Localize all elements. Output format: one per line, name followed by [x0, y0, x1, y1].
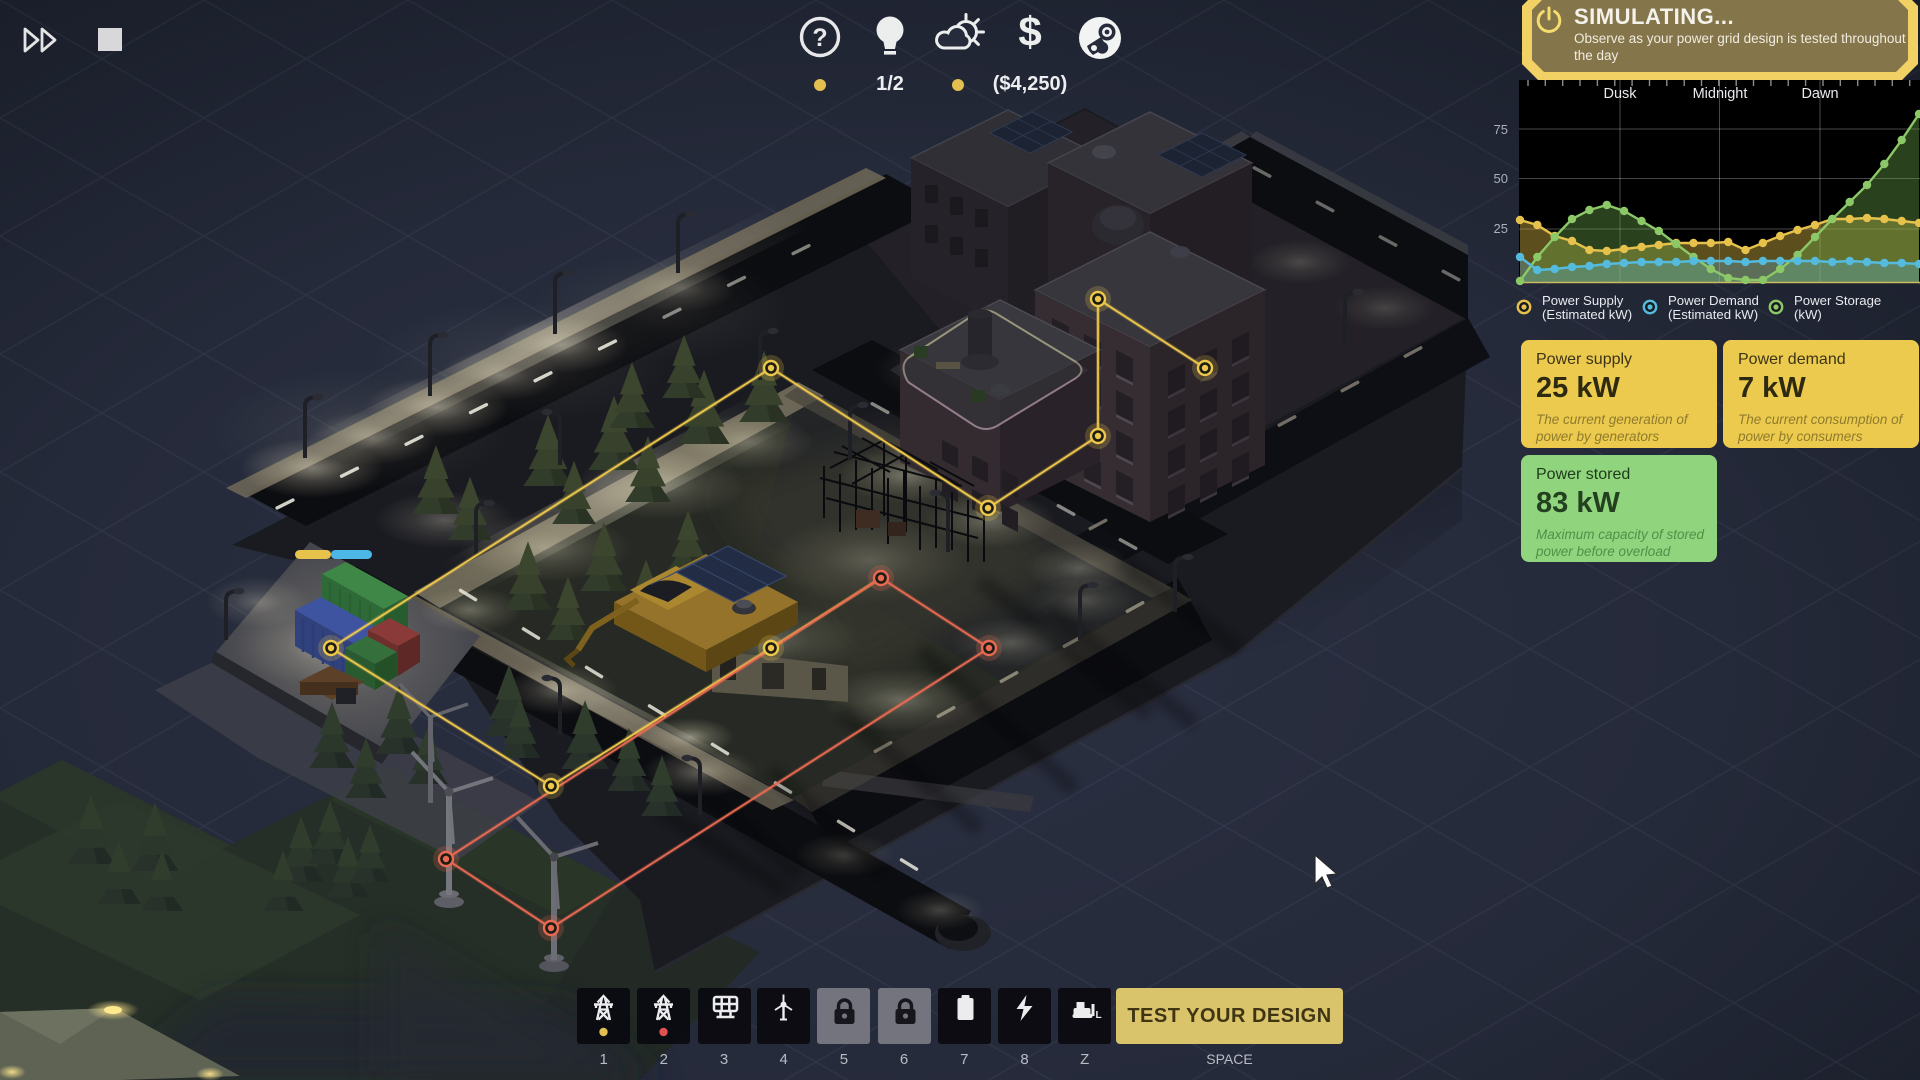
svg-text:50: 50 [1494, 171, 1508, 186]
svg-text:Midnight: Midnight [1693, 86, 1748, 102]
svg-text:Power Supply: Power Supply [1542, 293, 1624, 308]
svg-text:(Estimated kW): (Estimated kW) [1668, 307, 1758, 322]
svg-text:(kW): (kW) [1794, 307, 1822, 322]
svg-text:(Estimated kW): (Estimated kW) [1542, 307, 1632, 322]
svg-text:Power Demand: Power Demand [1668, 293, 1759, 308]
svg-text:L: L [1096, 1010, 1102, 1021]
svg-text:Dusk: Dusk [1603, 86, 1637, 102]
svg-text:Dawn: Dawn [1801, 86, 1838, 102]
svg-text:Power Storage: Power Storage [1794, 293, 1881, 308]
svg-text:25: 25 [1494, 221, 1508, 236]
svg-text:75: 75 [1494, 122, 1508, 137]
